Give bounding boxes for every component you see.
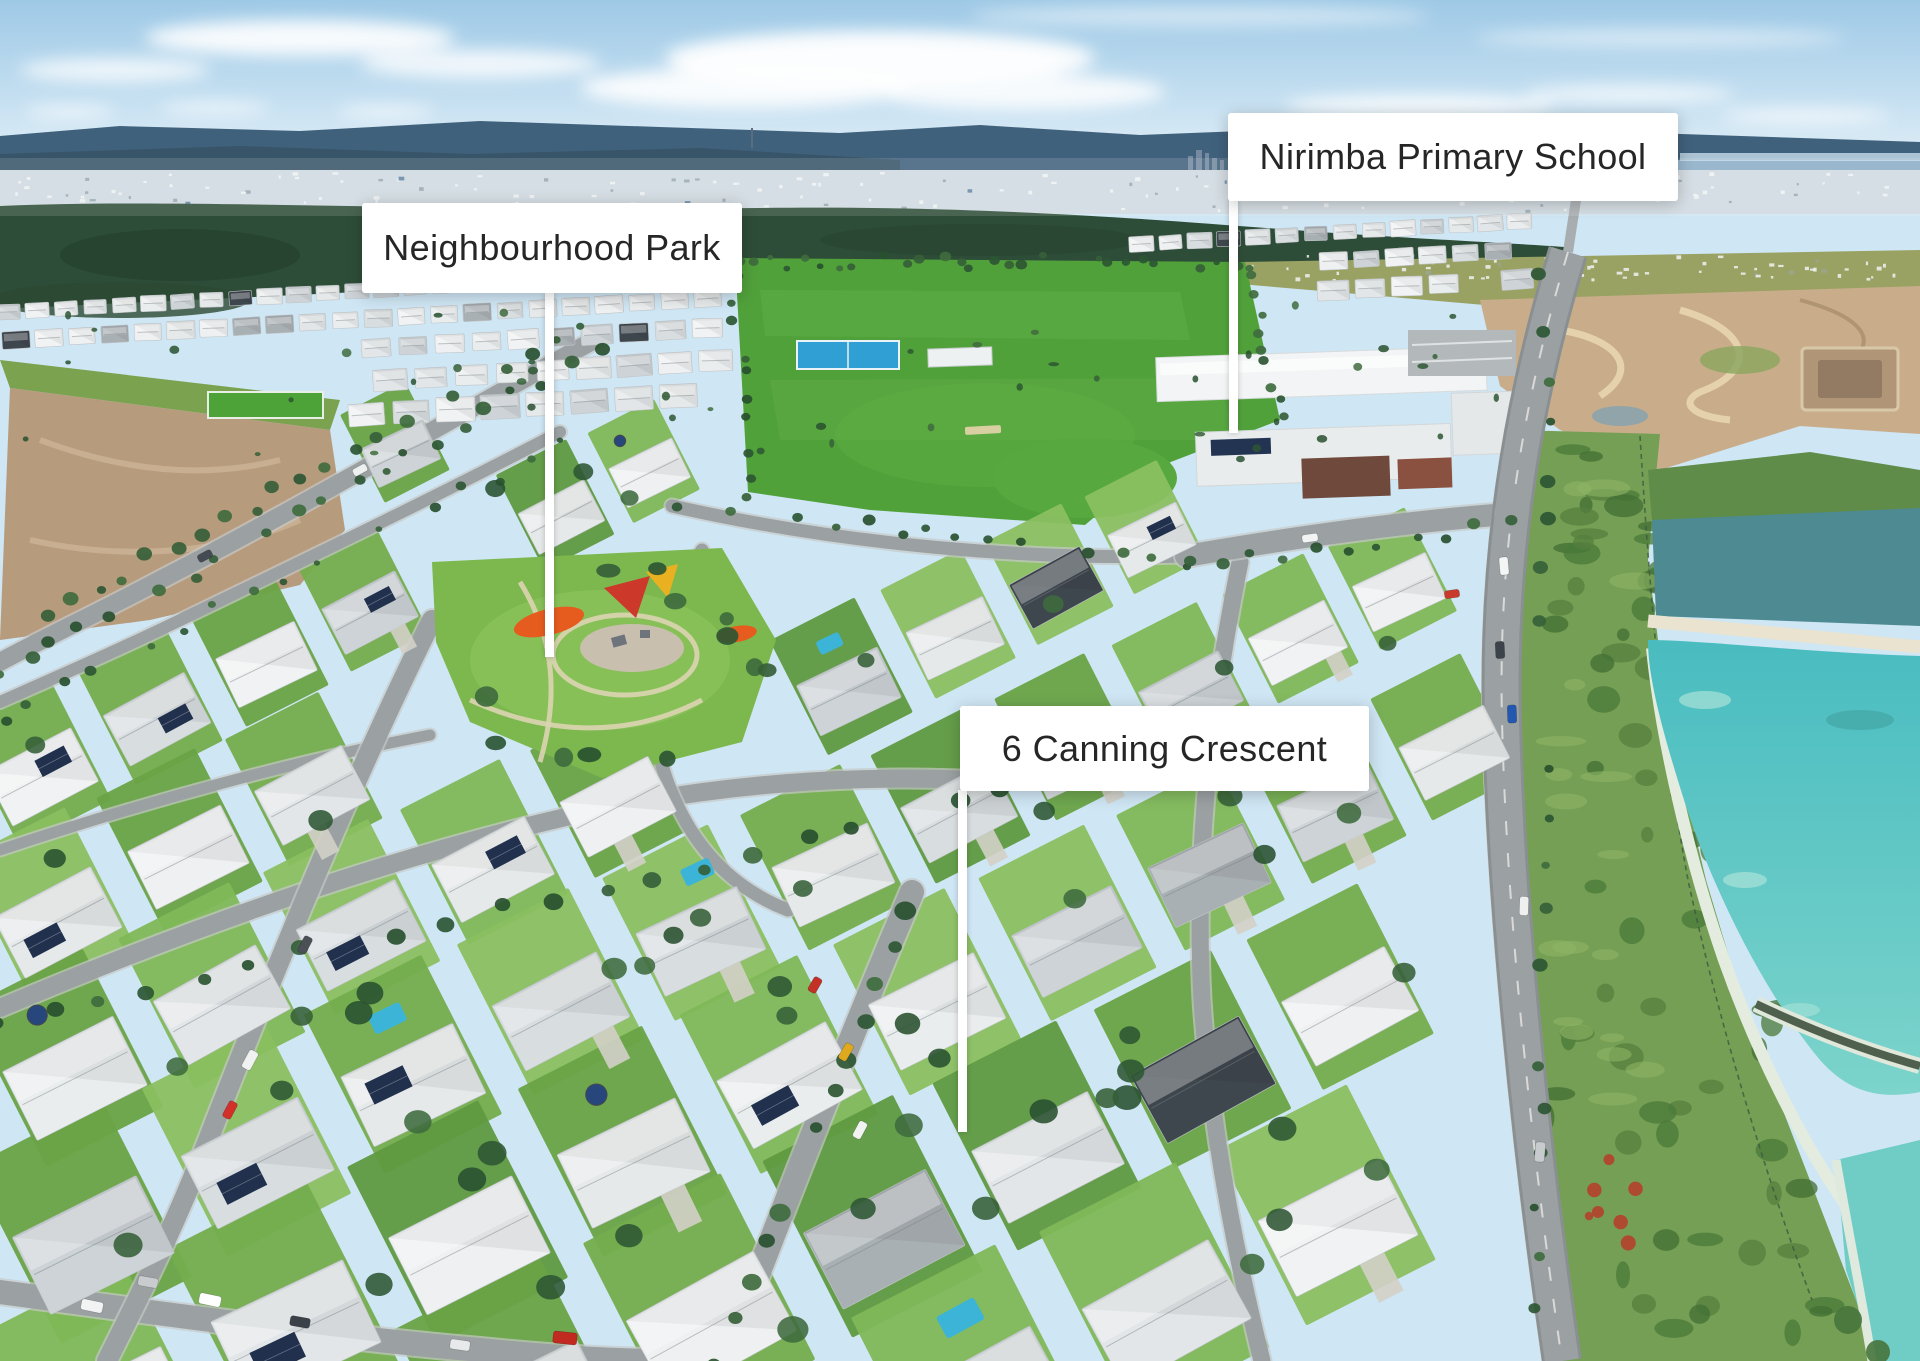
- aerial-photo: Neighbourhood Park Nirimba Primary Schoo…: [0, 0, 1920, 1361]
- label-nirimba-primary-school-text: Nirimba Primary School: [1260, 136, 1647, 178]
- label-neighbourhood-park-text: Neighbourhood Park: [383, 227, 720, 269]
- label-neighbourhood-park: Neighbourhood Park: [362, 203, 742, 293]
- sports-pavilion: [928, 347, 993, 367]
- label-nirimba-primary-school: Nirimba Primary School: [1228, 113, 1678, 201]
- nirimba-primary-school-pointer-line: [1229, 200, 1238, 433]
- upper-pond: [1652, 508, 1920, 626]
- label-canning-crescent-text: 6 Canning Crescent: [1002, 728, 1327, 770]
- aerial-scene: [0, 0, 1920, 1361]
- canning-crescent-pointer-line: [958, 790, 967, 1132]
- label-canning-crescent: 6 Canning Crescent: [960, 706, 1369, 791]
- playground-pad: [580, 624, 684, 672]
- soccer-field: [208, 392, 323, 418]
- school-parking: [1408, 330, 1516, 376]
- neighbourhood-park-pointer-line: [545, 292, 554, 657]
- neighbourhood-park-area: [432, 548, 776, 778]
